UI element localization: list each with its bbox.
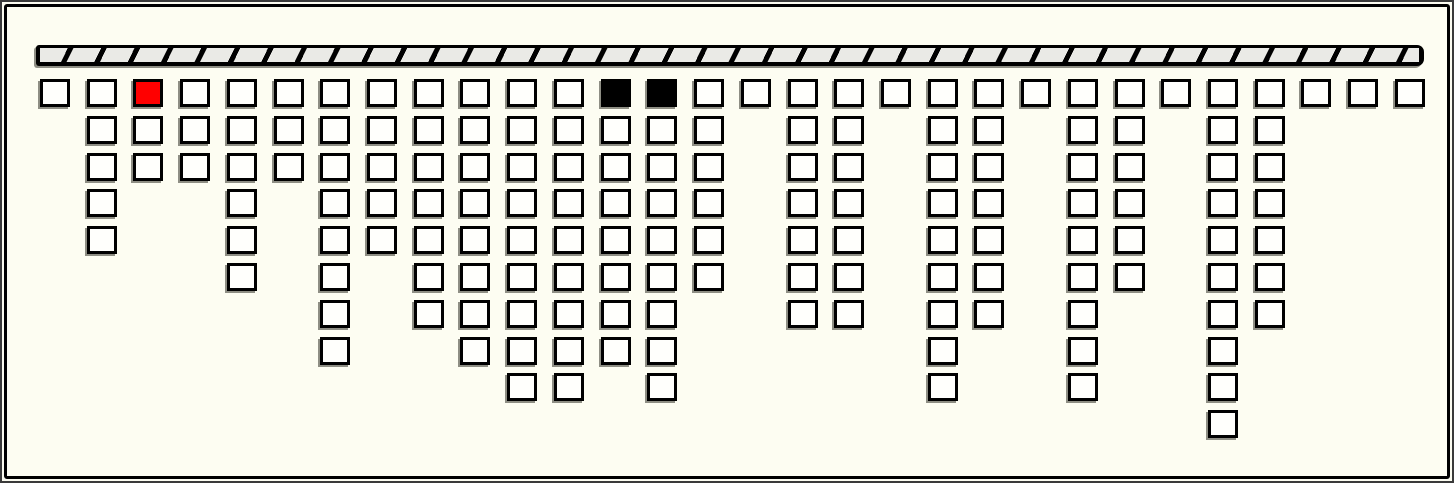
block-c24-r4[interactable] (1115, 189, 1145, 217)
block-c14-r7[interactable] (647, 300, 677, 328)
block-c23-r2[interactable] (1068, 116, 1098, 144)
block-c15-r3[interactable] (694, 153, 724, 181)
block-c27-r7[interactable] (1255, 300, 1285, 328)
block-c17-r1[interactable] (788, 79, 818, 107)
block-c17-r4[interactable] (788, 189, 818, 217)
block-c23-r5[interactable] (1068, 226, 1098, 254)
block-c21-r7[interactable] (974, 300, 1004, 328)
block-c7-r6[interactable] (320, 263, 350, 291)
block-c6-r3[interactable] (274, 153, 304, 181)
block-c12-r7[interactable] (554, 300, 584, 328)
block-c2-r2[interactable] (87, 116, 117, 144)
block-c9-r1[interactable] (414, 79, 444, 107)
block-c23-r9[interactable] (1068, 373, 1098, 401)
block-c22-r1[interactable] (1021, 79, 1051, 107)
block-c20-r9[interactable] (928, 373, 958, 401)
block-c13-r3[interactable] (601, 153, 631, 181)
block-c1-r1[interactable] (40, 79, 70, 107)
block-c10-r7[interactable] (460, 300, 490, 328)
block-c4-r3[interactable] (180, 153, 210, 181)
block-c21-r1[interactable] (974, 79, 1004, 107)
block-c14-r6[interactable] (647, 263, 677, 291)
block-c15-r5[interactable] (694, 226, 724, 254)
block-c24-r1[interactable] (1115, 79, 1145, 107)
block-c25-r1[interactable] (1161, 79, 1191, 107)
block-c9-r3[interactable] (414, 153, 444, 181)
block-c24-r6[interactable] (1115, 263, 1145, 291)
block-c12-r2[interactable] (554, 116, 584, 144)
block-c9-r6[interactable] (414, 263, 444, 291)
block-c20-r5[interactable] (928, 226, 958, 254)
block-c13-r1-highlight_black[interactable] (601, 79, 631, 107)
block-c27-r1[interactable] (1255, 79, 1285, 107)
block-c2-r4[interactable] (87, 189, 117, 217)
block-c13-r8[interactable] (601, 337, 631, 365)
block-c2-r3[interactable] (87, 153, 117, 181)
block-c12-r1[interactable] (554, 79, 584, 107)
block-board (7, 7, 1447, 476)
block-c23-r8[interactable] (1068, 337, 1098, 365)
block-c19-r1[interactable] (881, 79, 911, 107)
block-c5-r5[interactable] (227, 226, 257, 254)
block-c12-r9[interactable] (554, 373, 584, 401)
block-c20-r6[interactable] (928, 263, 958, 291)
block-c14-r2[interactable] (647, 116, 677, 144)
block-c23-r3[interactable] (1068, 153, 1098, 181)
block-c27-r5[interactable] (1255, 226, 1285, 254)
block-c7-r8[interactable] (320, 337, 350, 365)
block-c14-r3[interactable] (647, 153, 677, 181)
block-c20-r8[interactable] (928, 337, 958, 365)
block-c7-r4[interactable] (320, 189, 350, 217)
block-c18-r7[interactable] (834, 300, 864, 328)
block-c8-r2[interactable] (367, 116, 397, 144)
block-c23-r4[interactable] (1068, 189, 1098, 217)
block-c11-r5[interactable] (507, 226, 537, 254)
block-c13-r5[interactable] (601, 226, 631, 254)
block-c7-r3[interactable] (320, 153, 350, 181)
block-c2-r1[interactable] (87, 79, 117, 107)
block-c26-r7[interactable] (1208, 300, 1238, 328)
block-c11-r9[interactable] (507, 373, 537, 401)
block-c14-r4[interactable] (647, 189, 677, 217)
block-c8-r1[interactable] (367, 79, 397, 107)
block-c26-r4[interactable] (1208, 189, 1238, 217)
block-c18-r5[interactable] (834, 226, 864, 254)
block-c26-r10[interactable] (1208, 410, 1238, 438)
block-c15-r4[interactable] (694, 189, 724, 217)
block-c14-r5[interactable] (647, 226, 677, 254)
block-c8-r4[interactable] (367, 189, 397, 217)
block-c12-r8[interactable] (554, 337, 584, 365)
block-c4-r2[interactable] (180, 116, 210, 144)
block-c10-r2[interactable] (460, 116, 490, 144)
block-c15-r2[interactable] (694, 116, 724, 144)
block-c11-r8[interactable] (507, 337, 537, 365)
block-c5-r6[interactable] (227, 263, 257, 291)
block-c24-r3[interactable] (1115, 153, 1145, 181)
block-c10-r3[interactable] (460, 153, 490, 181)
block-c18-r4[interactable] (834, 189, 864, 217)
block-c26-r8[interactable] (1208, 337, 1238, 365)
block-c10-r4[interactable] (460, 189, 490, 217)
block-c14-r9[interactable] (647, 373, 677, 401)
block-c29-r1[interactable] (1348, 79, 1378, 107)
block-c24-r2[interactable] (1115, 116, 1145, 144)
block-c17-r5[interactable] (788, 226, 818, 254)
block-c6-r2[interactable] (274, 116, 304, 144)
block-c11-r3[interactable] (507, 153, 537, 181)
block-c13-r4[interactable] (601, 189, 631, 217)
block-c11-r7[interactable] (507, 300, 537, 328)
block-c21-r2[interactable] (974, 116, 1004, 144)
block-c3-r3[interactable] (133, 153, 163, 181)
block-c5-r1[interactable] (227, 79, 257, 107)
block-c27-r2[interactable] (1255, 116, 1285, 144)
block-c23-r7[interactable] (1068, 300, 1098, 328)
block-c27-r6[interactable] (1255, 263, 1285, 291)
block-c8-r3[interactable] (367, 153, 397, 181)
block-c10-r8[interactable] (460, 337, 490, 365)
block-c3-r1-highlight_red[interactable] (133, 79, 163, 107)
block-c18-r2[interactable] (834, 116, 864, 144)
block-c9-r5[interactable] (414, 226, 444, 254)
block-c16-r1[interactable] (741, 79, 771, 107)
block-c11-r4[interactable] (507, 189, 537, 217)
game-window (4, 4, 1450, 479)
block-c23-r6[interactable] (1068, 263, 1098, 291)
block-c4-r1[interactable] (180, 79, 210, 107)
block-c12-r4[interactable] (554, 189, 584, 217)
block-c26-r9[interactable] (1208, 373, 1238, 401)
block-c17-r7[interactable] (788, 300, 818, 328)
block-c26-r3[interactable] (1208, 153, 1238, 181)
block-c17-r6[interactable] (788, 263, 818, 291)
block-c9-r2[interactable] (414, 116, 444, 144)
block-c10-r5[interactable] (460, 226, 490, 254)
screen-edge (0, 0, 1454, 483)
block-c26-r2[interactable] (1208, 116, 1238, 144)
block-c23-r1[interactable] (1068, 79, 1098, 107)
block-c20-r1[interactable] (928, 79, 958, 107)
block-c9-r7[interactable] (414, 300, 444, 328)
block-c10-r1[interactable] (460, 79, 490, 107)
block-c26-r6[interactable] (1208, 263, 1238, 291)
block-c11-r2[interactable] (507, 116, 537, 144)
block-c14-r1-highlight_black[interactable] (647, 79, 677, 107)
block-c18-r3[interactable] (834, 153, 864, 181)
block-c8-r5[interactable] (367, 226, 397, 254)
block-c21-r5[interactable] (974, 226, 1004, 254)
block-c20-r3[interactable] (928, 153, 958, 181)
block-c7-r5[interactable] (320, 226, 350, 254)
block-c18-r6[interactable] (834, 263, 864, 291)
block-c3-r2[interactable] (133, 116, 163, 144)
block-c17-r2[interactable] (788, 116, 818, 144)
block-c5-r2[interactable] (227, 116, 257, 144)
block-c5-r4[interactable] (227, 189, 257, 217)
block-c12-r3[interactable] (554, 153, 584, 181)
block-c24-r5[interactable] (1115, 226, 1145, 254)
block-c7-r2[interactable] (320, 116, 350, 144)
block-c20-r7[interactable] (928, 300, 958, 328)
block-c14-r8[interactable] (647, 337, 677, 365)
block-c7-r1[interactable] (320, 79, 350, 107)
block-c11-r6[interactable] (507, 263, 537, 291)
block-c5-r3[interactable] (227, 153, 257, 181)
block-c13-r7[interactable] (601, 300, 631, 328)
block-c21-r6[interactable] (974, 263, 1004, 291)
block-c2-r5[interactable] (87, 226, 117, 254)
block-c26-r1[interactable] (1208, 79, 1238, 107)
block-c13-r2[interactable] (601, 116, 631, 144)
block-c15-r1[interactable] (694, 79, 724, 107)
block-c21-r4[interactable] (974, 189, 1004, 217)
block-c28-r1[interactable] (1301, 79, 1331, 107)
block-c20-r4[interactable] (928, 189, 958, 217)
block-c21-r3[interactable] (974, 153, 1004, 181)
block-c13-r6[interactable] (601, 263, 631, 291)
block-c7-r7[interactable] (320, 300, 350, 328)
block-c12-r5[interactable] (554, 226, 584, 254)
block-c11-r1[interactable] (507, 79, 537, 107)
block-c27-r3[interactable] (1255, 153, 1285, 181)
block-c27-r4[interactable] (1255, 189, 1285, 217)
block-c6-r1[interactable] (274, 79, 304, 107)
block-c18-r1[interactable] (834, 79, 864, 107)
block-c30-r1[interactable] (1395, 79, 1425, 107)
block-c26-r5[interactable] (1208, 226, 1238, 254)
block-c12-r6[interactable] (554, 263, 584, 291)
block-c9-r4[interactable] (414, 189, 444, 217)
block-c10-r6[interactable] (460, 263, 490, 291)
block-c15-r6[interactable] (694, 263, 724, 291)
block-c20-r2[interactable] (928, 116, 958, 144)
block-c17-r3[interactable] (788, 153, 818, 181)
